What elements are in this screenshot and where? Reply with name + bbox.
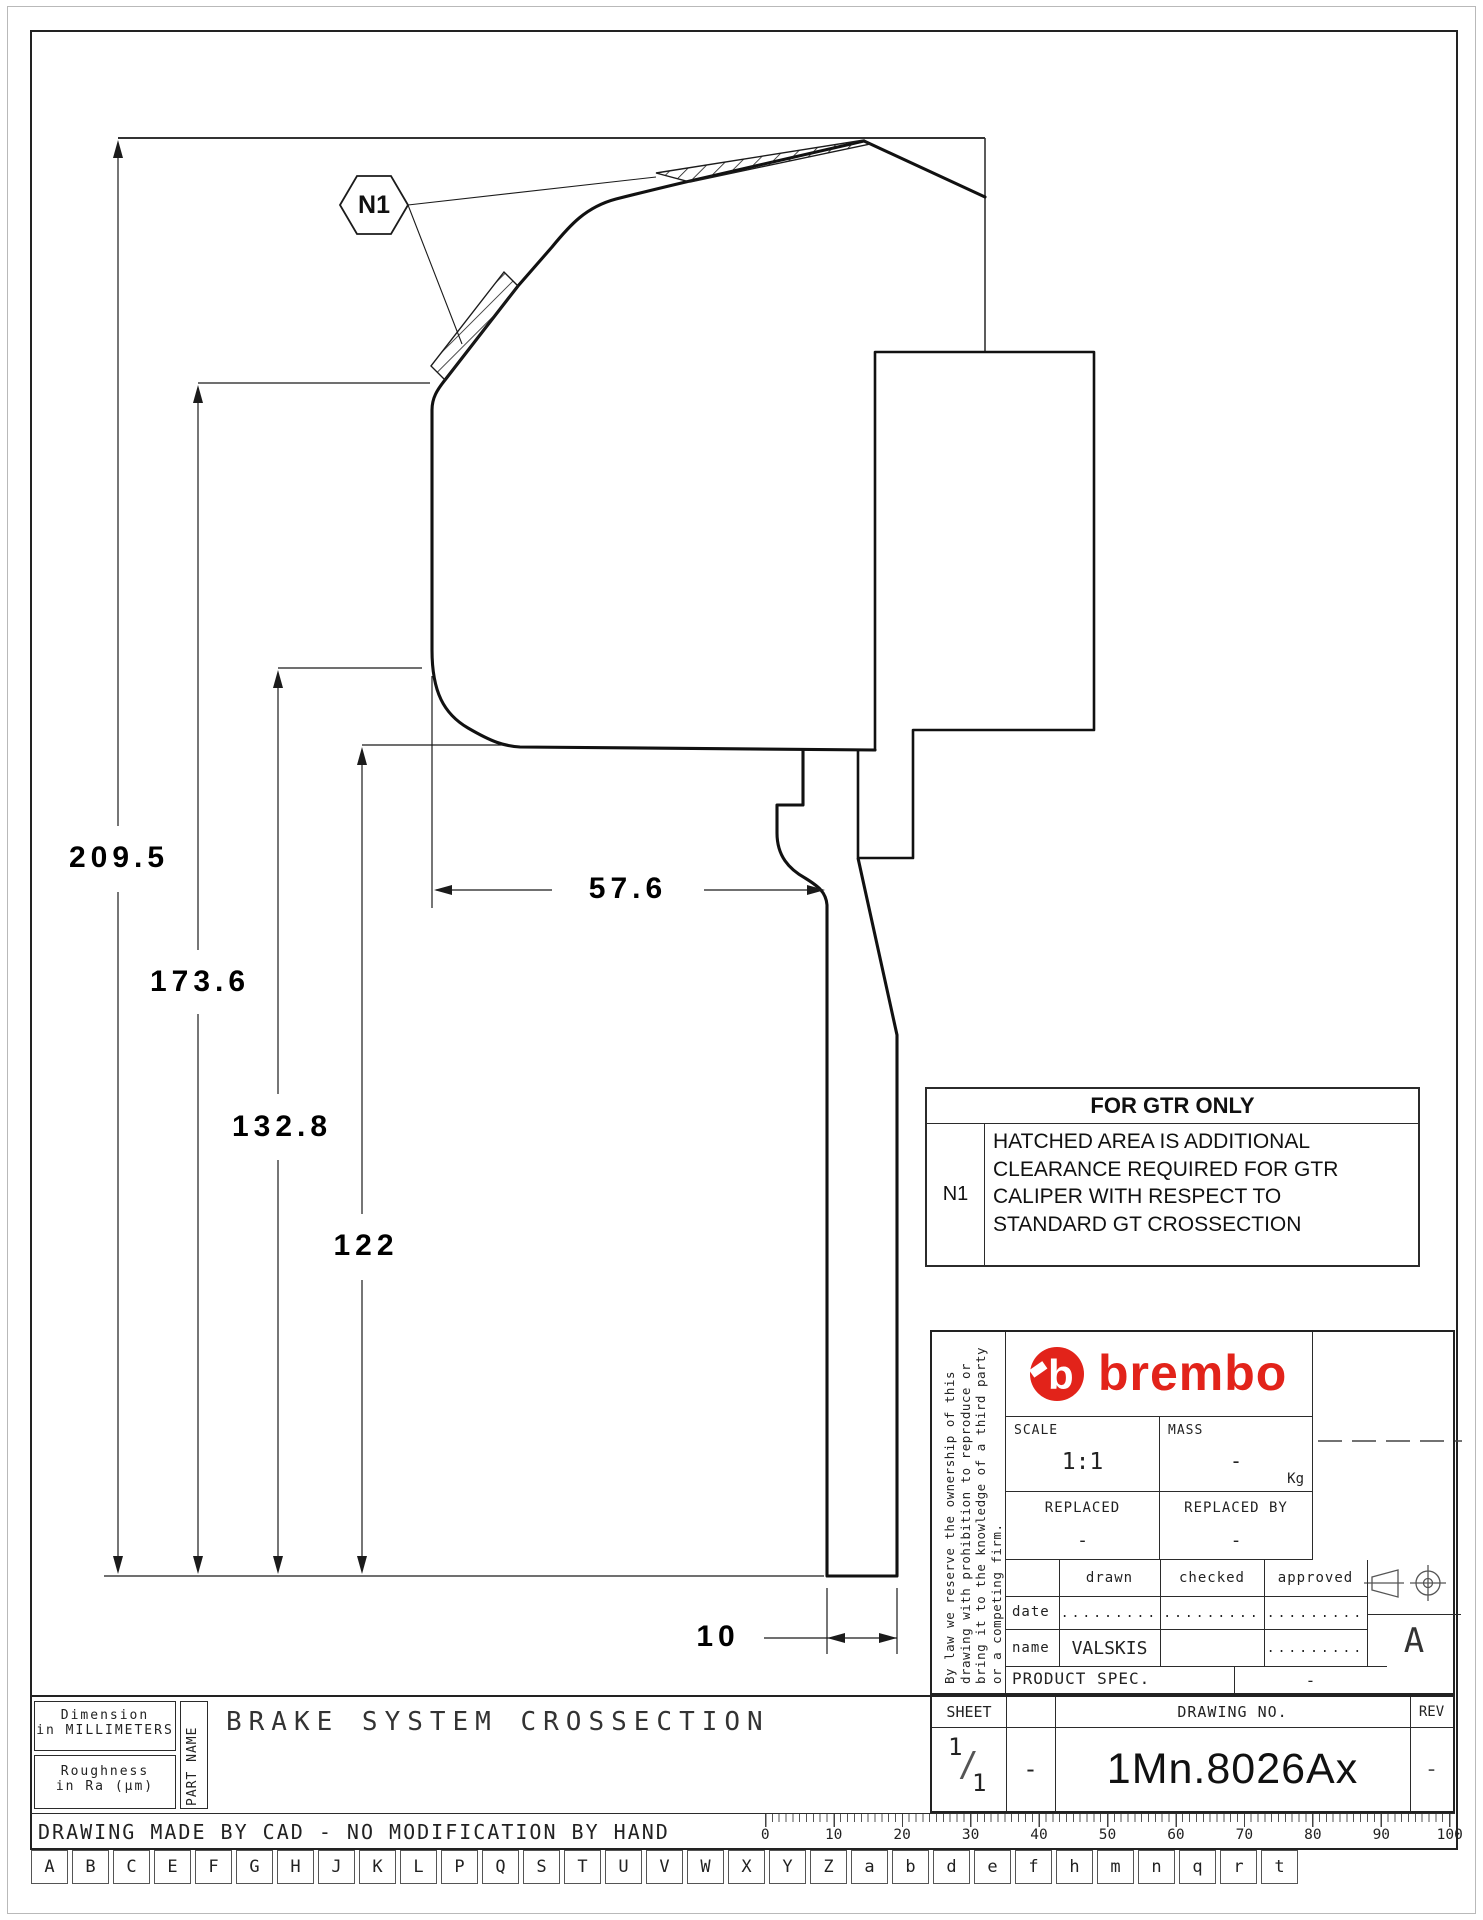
zone-letter-cell: L <box>400 1850 437 1884</box>
zone-letter-cell: H <box>277 1850 314 1884</box>
zone-letter-cell: X <box>728 1850 765 1884</box>
dimension-10: 10 <box>678 1620 758 1654</box>
replaced-by-label: REPLACED BY <box>1160 1500 1312 1516</box>
legal-column: By law we reserve the ownership of this … <box>932 1332 1006 1693</box>
doc-number-block: SHEET DRAWING NO. REV 1 / 1 - 1Mn.8026Ax… <box>930 1695 1455 1813</box>
zone-letter-cell: C <box>113 1850 150 1884</box>
name-checked <box>1160 1631 1264 1665</box>
zone-letter-cell: f <box>1015 1850 1052 1884</box>
legal-text: By law we reserve the ownership of this … <box>942 1339 1005 1684</box>
name-label: name <box>1012 1640 1050 1656</box>
mass-cell: MASS - Kg <box>1160 1417 1313 1492</box>
scale-label: SCALE <box>1014 1423 1058 1438</box>
product-spec-value: - <box>1234 1667 1387 1693</box>
dimension-209-5: 209.5 <box>49 841 189 875</box>
zone-letter-cell: T <box>564 1850 601 1884</box>
zone-letter-cell: Q <box>482 1850 519 1884</box>
zone-letter-cell: Y <box>769 1850 806 1884</box>
drawn-label: drawn <box>1059 1560 1160 1596</box>
mass-value: - <box>1160 1449 1312 1473</box>
scale-cell: SCALE 1:1 <box>1006 1417 1160 1492</box>
mass-unit: Kg <box>1287 1471 1304 1487</box>
dimension-57-6: 57.6 <box>558 872 698 906</box>
zone-letter-cell: n <box>1138 1850 1175 1884</box>
brembo-logo-icon: b <box>1028 1345 1086 1403</box>
size-letter: A <box>1367 1614 1461 1667</box>
zone-letter-cell: J <box>318 1850 355 1884</box>
rev-value: - <box>1410 1727 1453 1811</box>
zone-letter-cell: A <box>31 1850 68 1884</box>
gtr-note-ref: N1 <box>927 1124 985 1265</box>
date-checked: ......... <box>1160 1598 1264 1628</box>
scale-value: 1:1 <box>1006 1449 1159 1475</box>
checked-label: checked <box>1160 1560 1264 1596</box>
cad-drawing-page: { "callout": {"ref": "N1"}, "dimensions"… <box>0 0 1483 1920</box>
sheet-label: SHEET <box>932 1697 1006 1727</box>
replaced-cell: REPLACED - <box>1006 1492 1160 1560</box>
replaced-by-cell: REPLACED BY - <box>1160 1492 1313 1560</box>
zone-letter-cell: P <box>441 1850 478 1884</box>
zone-letter-cell: K <box>359 1850 396 1884</box>
zone-letter-cell: V <box>646 1850 683 1884</box>
part-name-value: BRAKE SYSTEM CROSSECTION <box>226 1707 770 1737</box>
replaced-value: - <box>1006 1530 1159 1551</box>
gtr-note-box: FOR GTR ONLY N1 HATCHED AREA IS ADDITION… <box>925 1087 1420 1267</box>
dimension-122: 122 <box>306 1229 426 1263</box>
zone-letter-cell: F <box>195 1850 232 1884</box>
ruler-major-ticks <box>765 1814 1451 1827</box>
n1-callout-label: N1 <box>344 178 404 232</box>
drawing-no-value: 1Mn.8026Ax <box>1055 1727 1410 1811</box>
mass-label: MASS <box>1168 1423 1203 1438</box>
approved-label: approved <box>1264 1560 1367 1596</box>
part-name-label-cell: PART NAME <box>180 1701 208 1809</box>
name-drawn: VALSKIS <box>1059 1631 1160 1665</box>
zone-letter-cell: E <box>154 1850 191 1884</box>
date-label: date <box>1012 1604 1050 1620</box>
zone-letter-cell: U <box>605 1850 642 1884</box>
part-name-label: PART NAME <box>185 1702 200 1806</box>
dimension-note-cell: Dimension in MILLIMETERS <box>34 1701 176 1751</box>
part-name-strip: Dimension in MILLIMETERS Roughness in Ra… <box>30 1695 930 1813</box>
date-drawn: ......... <box>1059 1598 1160 1628</box>
gtr-note-text: HATCHED AREA IS ADDITIONAL CLEARANCE REQ… <box>993 1128 1417 1239</box>
ruler-numbers: 0102030405060708090100 <box>731 1827 1483 1843</box>
zone-letter-cell: m <box>1097 1850 1134 1884</box>
gtr-note-title: FOR GTR ONLY <box>927 1089 1418 1124</box>
zone-letter-cell: h <box>1056 1850 1093 1884</box>
zone-letter-cell: q <box>1179 1850 1216 1884</box>
zone-letter-cell: S <box>523 1850 560 1884</box>
zone-letter-cell: t <box>1261 1850 1298 1884</box>
zone-letter-strip: ABCEFGHJKLPQSTUVWXYZabdefhmnqrt <box>31 1850 1298 1884</box>
title-block: By law we reserve the ownership of this … <box>930 1330 1455 1695</box>
product-spec-row: PRODUCT SPEC. - <box>1006 1667 1387 1693</box>
rev-label: REV <box>1410 1697 1453 1727</box>
zone-letter-cell: B <box>72 1850 109 1884</box>
dimension-132-8: 132.8 <box>212 1110 352 1144</box>
brand-cell: b brembo <box>1006 1332 1313 1417</box>
zone-letter-cell: b <box>892 1850 929 1884</box>
zone-letter-cell: a <box>851 1850 888 1884</box>
replaced-label: REPLACED <box>1006 1500 1159 1516</box>
svg-text:b: b <box>1048 1351 1074 1398</box>
dimension-173-6: 173.6 <box>130 965 270 999</box>
brand-wordmark: brembo <box>1098 1348 1287 1398</box>
cad-note: DRAWING MADE BY CAD - NO MODIFICATION BY… <box>38 1820 670 1844</box>
name-approved: ......... <box>1264 1631 1367 1665</box>
zone-letter-cell: d <box>933 1850 970 1884</box>
date-approved: ......... <box>1264 1598 1367 1628</box>
signature-grid: drawn checked approved date name .......… <box>1006 1560 1387 1667</box>
sheet-value: 1 / 1 <box>932 1727 1006 1811</box>
replaced-by-value: - <box>1160 1530 1312 1551</box>
drawing-no-label: DRAWING NO. <box>1055 1697 1410 1727</box>
zone-letter-cell: W <box>687 1850 724 1884</box>
sheet-extra: - <box>1006 1727 1055 1811</box>
zone-letter-cell: G <box>236 1850 273 1884</box>
product-spec-label: PRODUCT SPEC. <box>1012 1669 1150 1688</box>
zone-letter-cell: r <box>1220 1850 1257 1884</box>
zone-letter-cell: Z <box>810 1850 847 1884</box>
zone-letter-cell: e <box>974 1850 1011 1884</box>
footer-bar: DRAWING MADE BY CAD - NO MODIFICATION BY… <box>30 1813 1455 1846</box>
roughness-note-cell: Roughness in Ra (µm) <box>34 1755 176 1809</box>
